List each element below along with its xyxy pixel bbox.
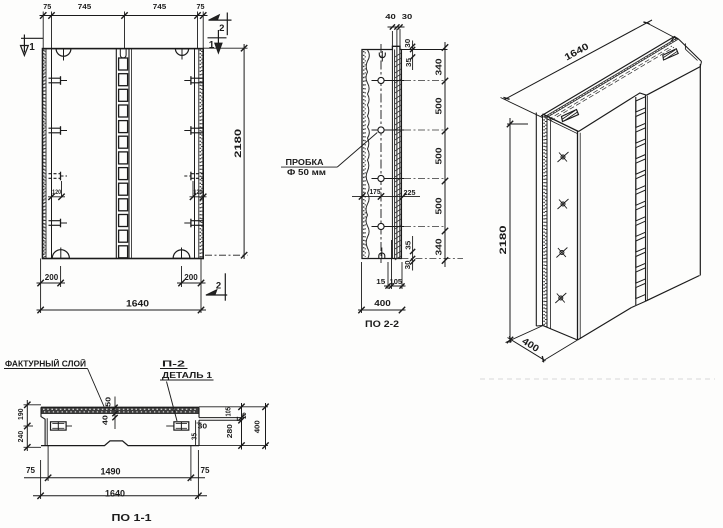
svg-text:340: 340 xyxy=(434,238,444,255)
svg-text:ПО 1-1: ПО 1-1 xyxy=(112,512,152,524)
svg-text:35: 35 xyxy=(406,58,413,67)
svg-text:30: 30 xyxy=(405,39,412,48)
svg-text:ДЕТАЛЬ 1: ДЕТАЛЬ 1 xyxy=(162,370,212,380)
svg-text:500: 500 xyxy=(434,97,444,114)
svg-text:1: 1 xyxy=(29,42,35,53)
svg-text:280: 280 xyxy=(225,424,234,438)
svg-text:ПРОБКА: ПРОБКА xyxy=(286,158,324,167)
svg-text:225: 225 xyxy=(404,190,416,197)
svg-text:40: 40 xyxy=(101,415,110,425)
svg-text:175: 175 xyxy=(370,189,381,196)
svg-text:745: 745 xyxy=(153,2,167,11)
svg-text:40: 40 xyxy=(385,12,396,21)
svg-text:15: 15 xyxy=(376,279,385,286)
svg-text:35: 35 xyxy=(192,433,199,440)
svg-text:35: 35 xyxy=(406,241,413,250)
svg-text:400: 400 xyxy=(374,298,391,308)
svg-text:500: 500 xyxy=(434,197,444,214)
svg-text:1640: 1640 xyxy=(105,488,125,498)
svg-text:П-2: П-2 xyxy=(162,359,185,369)
svg-text:340: 340 xyxy=(434,58,444,75)
svg-text:745: 745 xyxy=(78,2,92,11)
svg-text:1640: 1640 xyxy=(126,298,149,308)
svg-text:50: 50 xyxy=(103,397,112,407)
svg-text:1490: 1490 xyxy=(101,467,121,477)
svg-text:75: 75 xyxy=(26,466,36,475)
svg-text:ФАКТУРНЫЙ СЛОЙ: ФАКТУРНЫЙ СЛОЙ xyxy=(5,358,86,369)
svg-text:200: 200 xyxy=(184,272,198,282)
svg-text:1: 1 xyxy=(209,40,215,51)
svg-text:2180: 2180 xyxy=(498,226,509,255)
svg-text:240: 240 xyxy=(16,431,25,443)
svg-text:105: 105 xyxy=(390,279,403,286)
svg-text:400: 400 xyxy=(253,420,262,433)
svg-text:75: 75 xyxy=(197,2,205,11)
svg-text:120: 120 xyxy=(194,189,203,196)
svg-text:200: 200 xyxy=(45,272,59,282)
svg-text:ПО 2-2: ПО 2-2 xyxy=(365,319,399,330)
svg-text:2: 2 xyxy=(216,281,221,292)
svg-text:15: 15 xyxy=(241,412,248,419)
svg-text:190: 190 xyxy=(16,408,25,420)
svg-text:105: 105 xyxy=(225,407,232,417)
svg-text:Ф 50 мм: Ф 50 мм xyxy=(287,168,326,177)
svg-text:30: 30 xyxy=(405,260,412,269)
svg-text:75: 75 xyxy=(43,2,51,11)
svg-text:75: 75 xyxy=(201,466,211,475)
svg-text:120: 120 xyxy=(52,189,61,196)
svg-text:2: 2 xyxy=(219,23,224,34)
svg-text:500: 500 xyxy=(434,147,444,164)
svg-text:30: 30 xyxy=(402,12,413,21)
svg-text:2180: 2180 xyxy=(233,129,243,158)
